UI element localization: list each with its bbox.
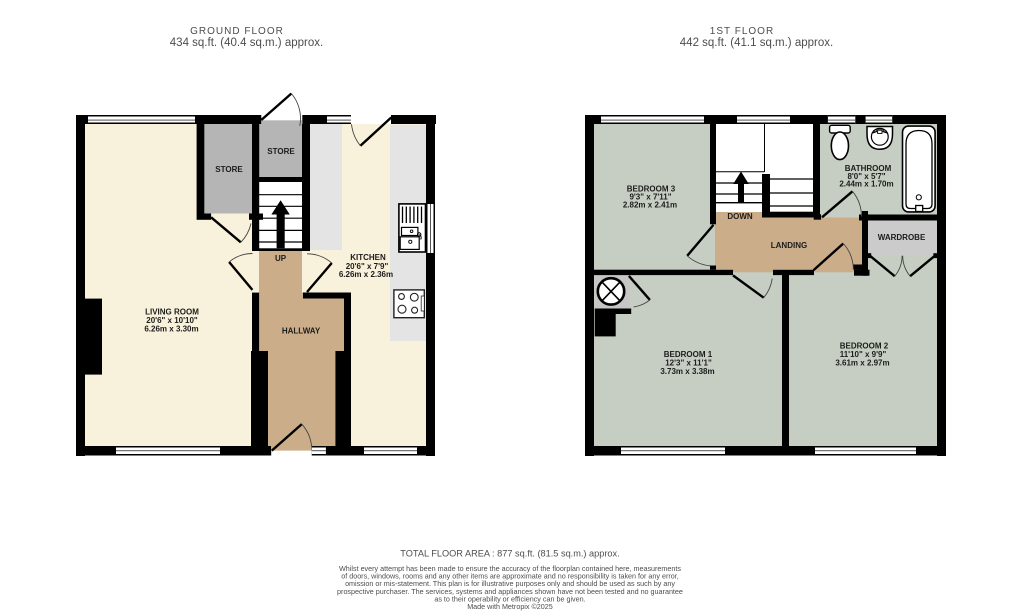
svg-text:KITCHEN: KITCHEN	[350, 253, 386, 262]
svg-text:UP: UP	[275, 254, 287, 263]
svg-text:WARDROBE: WARDROBE	[878, 233, 926, 242]
svg-text:6.26m x 3.30m: 6.26m x 3.30m	[144, 324, 198, 333]
svg-text:DOWN: DOWN	[727, 212, 753, 221]
svg-text:442 sq.ft. (41.1 sq.m.) approx: 442 sq.ft. (41.1 sq.m.) approx.	[680, 37, 833, 49]
svg-text:3.61m x 2.97m: 3.61m x 2.97m	[835, 359, 889, 368]
svg-text:TOTAL FLOOR AREA : 877 sq.ft.: TOTAL FLOOR AREA : 877 sq.ft. (81.5 sq.m…	[400, 548, 619, 558]
svg-text:6.26m x 2.36m: 6.26m x 2.36m	[339, 270, 393, 279]
svg-text:1ST FLOOR: 1ST FLOOR	[710, 26, 774, 37]
svg-text:STORE: STORE	[215, 165, 243, 174]
svg-text:2.82m x 2.41m: 2.82m x 2.41m	[623, 201, 677, 210]
svg-text:434 sq.ft. (40.4 sq.m.) approx: 434 sq.ft. (40.4 sq.m.) approx.	[170, 37, 323, 49]
svg-text:STORE: STORE	[267, 147, 295, 156]
svg-text:GROUND FLOOR: GROUND FLOOR	[190, 26, 284, 37]
svg-text:HALLWAY: HALLWAY	[282, 327, 321, 336]
svg-text:2.44m x 1.70m: 2.44m x 1.70m	[839, 180, 893, 189]
svg-text:LANDING: LANDING	[771, 241, 807, 250]
svg-text:3.73m x 3.38m: 3.73m x 3.38m	[660, 367, 714, 376]
svg-text:Made with Metropix ©2025: Made with Metropix ©2025	[467, 602, 553, 611]
